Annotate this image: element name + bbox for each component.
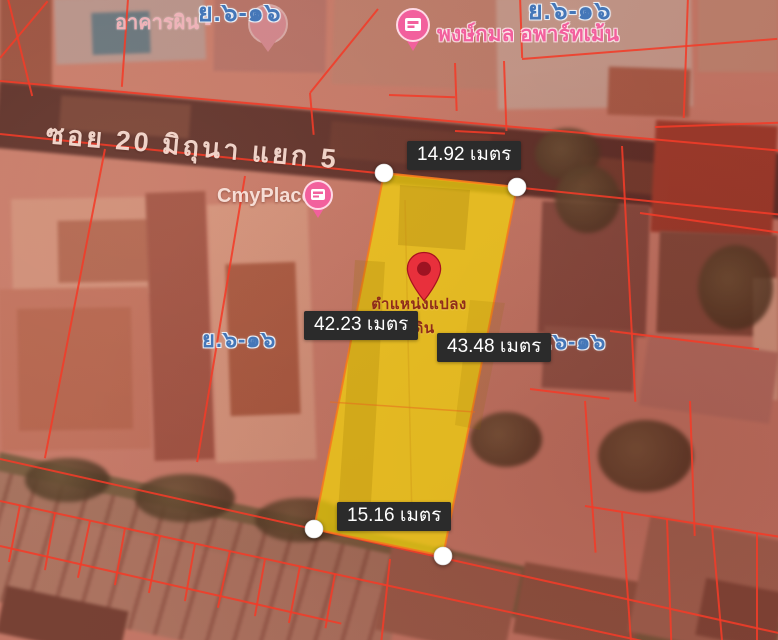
measurement-label-right: 43.48 เมตร — [437, 333, 551, 362]
plot-vertex-handle[interactable] — [434, 547, 452, 565]
satellite-map[interactable]: ตำแหน่งแปลงที่ดิน ซอย 20 มิถุนา แยก 5 อา… — [0, 0, 778, 640]
measurement-label-top: 14.92 เมตร — [407, 141, 521, 170]
cmyplace-label: CmyPlace — [217, 185, 313, 208]
apartment-pin-icon[interactable] — [392, 6, 434, 52]
plot-inner-shade — [398, 185, 470, 250]
zoning-label: ย.๖-๑๖ — [528, 0, 612, 31]
plot-vertex-handle[interactable] — [375, 164, 393, 182]
cmyplace-pin-icon[interactable] — [300, 179, 336, 219]
measurement-label-left: 42.23 เมตร — [304, 311, 418, 340]
building-name-label: อาคารผิน - — [115, 6, 211, 38]
zoning-label: ย.๖-๑๖ — [198, 0, 282, 33]
plot-vertex-handle[interactable] — [305, 520, 323, 538]
measurement-label-bottom: 15.16 เมตร — [337, 502, 451, 531]
zoning-label: ย.๖-๑๖ — [202, 322, 276, 357]
plot-vertex-handle[interactable] — [508, 178, 526, 196]
